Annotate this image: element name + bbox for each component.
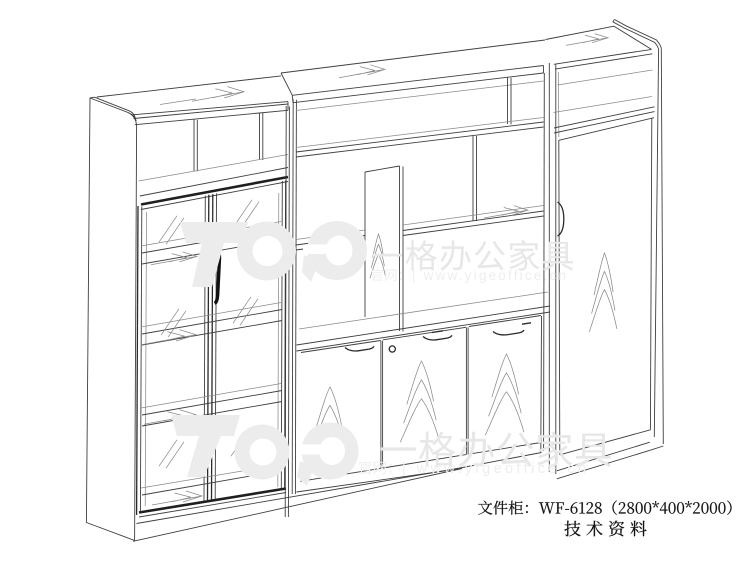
svg-text:| www.yigeoffice.cn: | www.yigeoffice.cn: [412, 268, 568, 283]
svg-text:| www.yigeoffice.cn: | www.yigeoffice.cn: [402, 461, 589, 477]
